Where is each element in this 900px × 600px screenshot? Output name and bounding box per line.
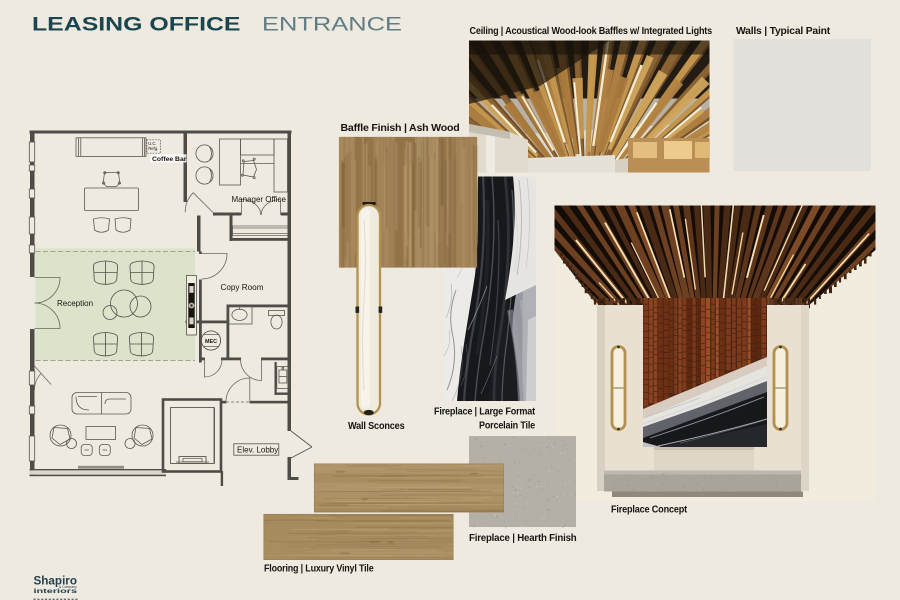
svg-text:Reception: Reception <box>57 299 93 308</box>
svg-text:Flooring | Luxury Vinyl Tile: Flooring | Luxury Vinyl Tile <box>264 564 374 575</box>
svg-text:Fireplace | Hearth Finish: Fireplace | Hearth Finish <box>469 533 577 544</box>
svg-text:Coffee Bar: Coffee Bar <box>152 156 187 163</box>
svg-text:Porcelain Tile: Porcelain Tile <box>479 421 536 432</box>
svg-text:MEC: MEC <box>205 339 217 345</box>
svg-text:Baffle Finish | Ash Wood: Baffle Finish | Ash Wood <box>341 123 460 134</box>
svg-text:interiors: interiors <box>34 588 78 595</box>
svg-text:Wall Sconces: Wall Sconces <box>348 421 405 432</box>
svg-text:LEASING OFFICE: LEASING OFFICE <box>32 13 241 35</box>
svg-text:ENTRANCE: ENTRANCE <box>262 13 402 35</box>
svg-text:Ceiling | Acoustical Wood-look: Ceiling | Acoustical Wood-look Baffles w… <box>470 26 713 37</box>
svg-text:Manager Office: Manager Office <box>232 195 287 204</box>
svg-text:Elev. Lobby: Elev. Lobby <box>237 446 278 455</box>
svg-text:Refg.: Refg. <box>148 146 158 151</box>
svg-text:Copy Room: Copy Room <box>221 283 264 292</box>
svg-text:Walls | Typical Paint: Walls | Typical Paint <box>736 26 831 37</box>
svg-text:Fireplace Concept: Fireplace Concept <box>611 505 688 516</box>
svg-text:Fireplace | Large Format: Fireplace | Large Format <box>434 407 536 418</box>
